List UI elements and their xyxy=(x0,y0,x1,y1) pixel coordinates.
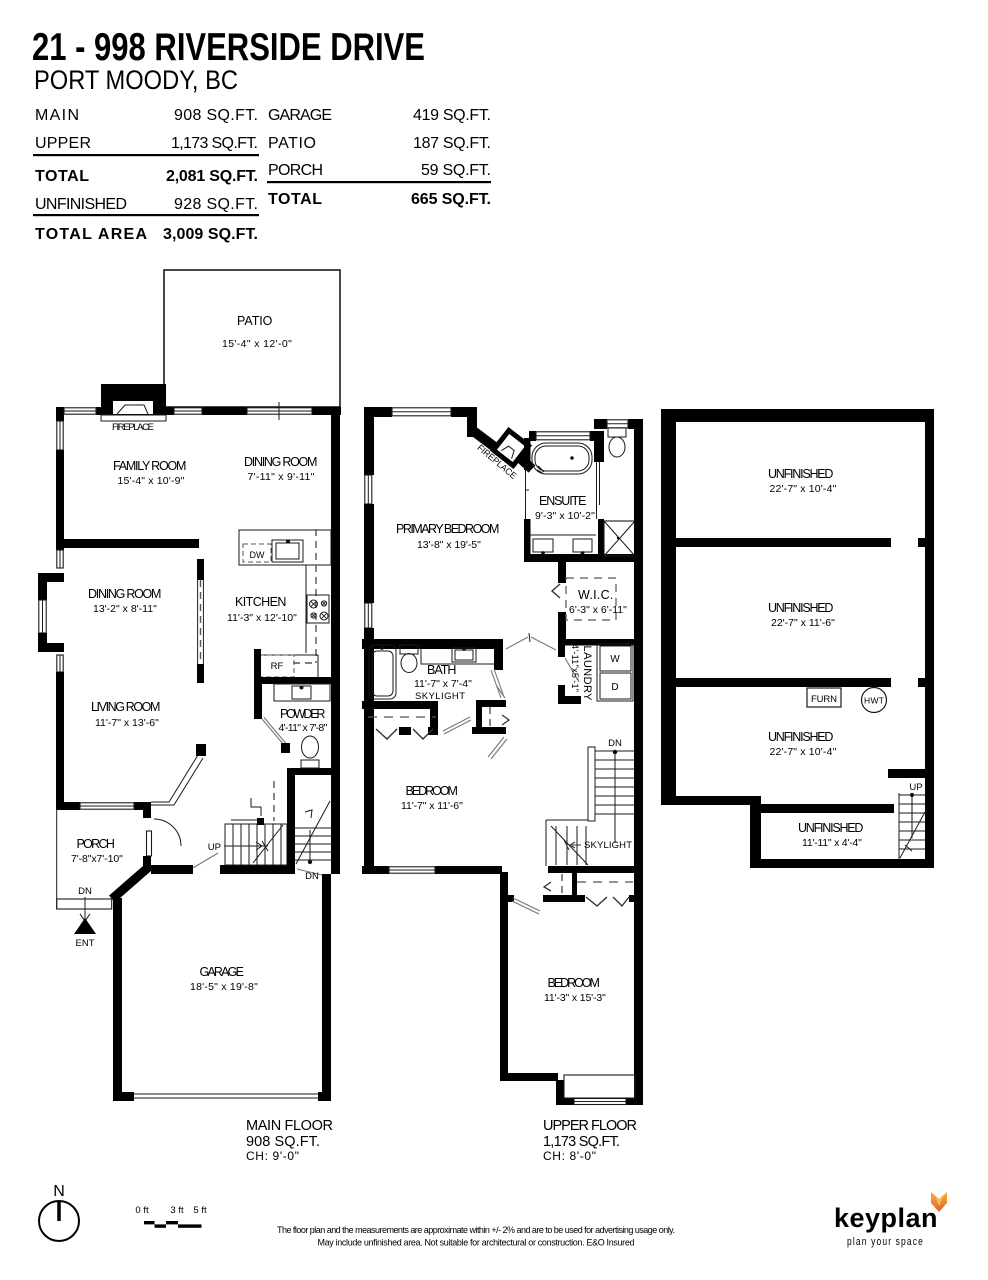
svg-text:KITCHEN: KITCHEN xyxy=(235,595,287,609)
svg-text:15'-4" x 12'-0": 15'-4" x 12'-0" xyxy=(222,338,292,350)
svg-text:11'-3" x 15'-3": 11'-3" x 15'-3" xyxy=(544,992,606,1004)
svg-text:ENT: ENT xyxy=(76,938,95,949)
svg-text:0 ft: 0 ft xyxy=(135,1205,149,1216)
svg-text:UNFINISHED: UNFINISHED xyxy=(768,730,834,744)
svg-text:DINING ROOM: DINING ROOM xyxy=(88,587,162,601)
svg-text:22'-7" x 10'-4": 22'-7" x 10'-4" xyxy=(770,746,837,758)
svg-text:11'-7" x 7'-4": 11'-7" x 7'-4" xyxy=(414,678,472,690)
svg-text:LAUNDRY: LAUNDRY xyxy=(581,646,593,702)
svg-text:D: D xyxy=(611,682,618,693)
svg-text:UPPER: UPPER xyxy=(35,135,91,152)
svg-text:665 SQ.FT.: 665 SQ.FT. xyxy=(411,191,491,208)
svg-text:9'-3" x 10'-2": 9'-3" x 10'-2" xyxy=(535,510,595,522)
svg-text:UNFINISHED: UNFINISHED xyxy=(768,601,834,615)
svg-text:UP: UP xyxy=(208,842,221,853)
svg-text:7'-8"x7'-10": 7'-8"x7'-10" xyxy=(71,853,123,865)
svg-text:13'-8" x 19'-5": 13'-8" x 19'-5" xyxy=(417,539,481,551)
svg-text:11'-7" x 11'-6": 11'-7" x 11'-6" xyxy=(401,800,463,812)
svg-text:PORCH: PORCH xyxy=(268,162,323,179)
svg-text:RF: RF xyxy=(271,661,284,672)
svg-text:18'-5" x 19'-8": 18'-5" x 19'-8" xyxy=(190,981,258,993)
svg-text:BEDROOM: BEDROOM xyxy=(548,976,601,990)
svg-text:TOTAL AREA: TOTAL AREA xyxy=(35,226,147,243)
svg-text:59 SQ.FT.: 59 SQ.FT. xyxy=(421,162,491,179)
svg-text:DN: DN xyxy=(608,738,622,749)
svg-text:SKYLIGHT: SKYLIGHT xyxy=(584,840,632,851)
svg-text:CH: 8'-0": CH: 8'-0" xyxy=(543,1149,596,1163)
svg-text:May include unfinished area. N: May include unfinished area. Not suitabl… xyxy=(318,1238,635,1248)
svg-text:15'-4" x 10'-9": 15'-4" x 10'-9" xyxy=(118,475,185,487)
svg-text:21 - 998 RIVERSIDE DRIVE: 21 - 998 RIVERSIDE DRIVE xyxy=(32,26,425,69)
svg-text:PRIMARY BEDROOM: PRIMARY BEDROOM xyxy=(396,522,500,536)
svg-text:928 SQ.FT.: 928 SQ.FT. xyxy=(174,196,258,213)
svg-text:11'-7" x 13'-6": 11'-7" x 13'-6" xyxy=(95,717,159,729)
svg-text:POWDER: POWDER xyxy=(280,707,326,721)
svg-text:13'-2" x 8'-11": 13'-2" x 8'-11" xyxy=(93,603,157,615)
svg-text:22'-7" x 11'-6": 22'-7" x 11'-6" xyxy=(771,617,835,629)
svg-text:SKYLIGHT: SKYLIGHT xyxy=(415,691,465,702)
svg-text:HWT: HWT xyxy=(864,696,884,706)
svg-text:TOTAL: TOTAL xyxy=(35,168,89,185)
svg-text:908 SQ.FT.: 908 SQ.FT. xyxy=(246,1134,320,1150)
svg-text:The floor plan and the measure: The floor plan and the measurements are … xyxy=(277,1225,675,1235)
svg-text:PORCH: PORCH xyxy=(77,837,116,851)
svg-text:DINING ROOM: DINING ROOM xyxy=(244,455,318,469)
svg-text:GARAGE: GARAGE xyxy=(268,107,332,124)
svg-text:FAMILY ROOM: FAMILY ROOM xyxy=(113,459,187,473)
svg-text:W: W xyxy=(610,654,620,665)
svg-text:BATH: BATH xyxy=(427,663,457,677)
svg-text:DW: DW xyxy=(250,550,265,560)
svg-text:UNFINISHED: UNFINISHED xyxy=(798,821,864,835)
svg-text:3,009 SQ.FT.: 3,009 SQ.FT. xyxy=(163,226,258,243)
svg-text:419 SQ.FT.: 419 SQ.FT. xyxy=(413,107,491,124)
svg-text:3 ft: 3 ft xyxy=(170,1205,184,1216)
svg-text:4'-11" x 7'-8": 4'-11" x 7'-8" xyxy=(279,722,328,734)
svg-text:DN: DN xyxy=(305,871,319,882)
svg-text:MAIN FLOOR: MAIN FLOOR xyxy=(246,1118,333,1134)
svg-text:N: N xyxy=(53,1183,65,1200)
svg-text:BEDROOM: BEDROOM xyxy=(406,784,459,798)
svg-text:4'-11"x5'-1": 4'-11"x5'-1" xyxy=(570,644,580,692)
svg-text:GARAGE: GARAGE xyxy=(200,965,245,979)
svg-text:2,081 SQ.FT.: 2,081 SQ.FT. xyxy=(166,168,258,185)
svg-text:1,173 SQ.FT.: 1,173 SQ.FT. xyxy=(171,135,258,152)
svg-text:6'-3" x 6'-11": 6'-3" x 6'-11" xyxy=(569,604,627,616)
svg-text:7'-11" x 9'-11": 7'-11" x 9'-11" xyxy=(248,471,315,483)
svg-text:PATIO: PATIO xyxy=(237,314,273,328)
svg-text:11'-11" x 4'-4": 11'-11" x 4'-4" xyxy=(802,837,862,849)
svg-text:W.I.C.: W.I.C. xyxy=(578,588,614,602)
svg-text:PATIO: PATIO xyxy=(268,135,316,152)
svg-text:PORT MOODY, BC: PORT MOODY, BC xyxy=(34,65,238,95)
svg-text:LIVING ROOM: LIVING ROOM xyxy=(91,700,161,714)
svg-text:plan your space: plan your space xyxy=(847,1236,924,1248)
svg-text:11'-3" x 12'-10": 11'-3" x 12'-10" xyxy=(227,612,297,624)
svg-text:MAIN: MAIN xyxy=(35,107,79,124)
svg-text:UNFINISHED: UNFINISHED xyxy=(35,196,127,213)
svg-text:UPPER FLOOR: UPPER FLOOR xyxy=(543,1118,637,1134)
svg-text:UP: UP xyxy=(909,782,922,793)
svg-text:UNFINISHED: UNFINISHED xyxy=(768,467,834,481)
svg-text:1,173 SQ.FT.: 1,173 SQ.FT. xyxy=(543,1134,620,1150)
svg-text:187 SQ.FT.: 187 SQ.FT. xyxy=(413,135,491,152)
svg-text:TOTAL: TOTAL xyxy=(268,191,322,208)
svg-text:FURN: FURN xyxy=(811,694,837,705)
svg-text:CH: 9'-0": CH: 9'-0" xyxy=(246,1149,299,1163)
svg-text:5 ft: 5 ft xyxy=(193,1205,207,1216)
svg-text:FIREPLACE: FIREPLACE xyxy=(112,422,154,433)
svg-text:DN: DN xyxy=(78,886,92,897)
svg-text:keyplan: keyplan xyxy=(834,1203,938,1233)
svg-text:ENSUITE: ENSUITE xyxy=(539,494,587,508)
svg-text:22'-7" x 10'-4": 22'-7" x 10'-4" xyxy=(770,483,837,495)
svg-text:908 SQ.FT.: 908 SQ.FT. xyxy=(174,107,258,124)
